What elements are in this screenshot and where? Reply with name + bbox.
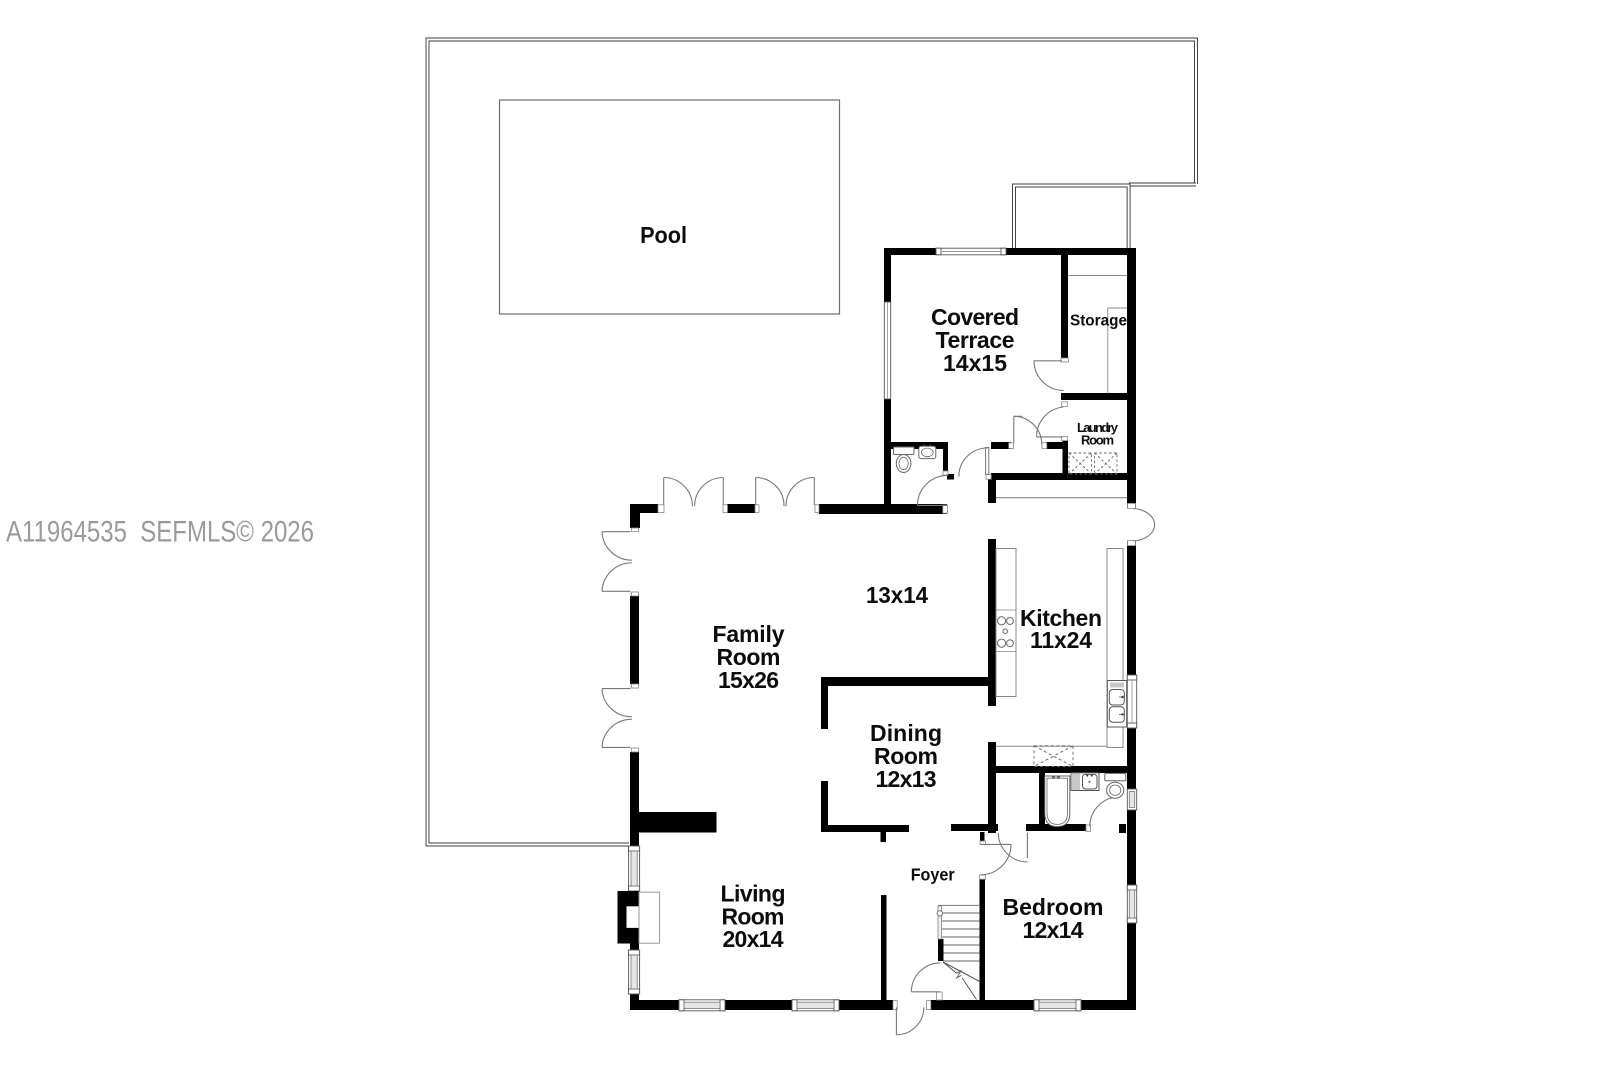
svg-text:20x14: 20x14 bbox=[723, 926, 784, 952]
svg-text:Foyer: Foyer bbox=[911, 865, 955, 885]
svg-text:14x15: 14x15 bbox=[943, 350, 1007, 376]
svg-text:11x24: 11x24 bbox=[1030, 627, 1092, 653]
svg-text:Room: Room bbox=[1081, 433, 1114, 448]
svg-text:Pool: Pool bbox=[640, 222, 687, 248]
svg-text:Storage: Storage bbox=[1070, 313, 1127, 330]
svg-text:12x13: 12x13 bbox=[876, 766, 937, 792]
svg-text:12x14: 12x14 bbox=[1023, 917, 1084, 943]
svg-text:15x26: 15x26 bbox=[718, 667, 779, 693]
svg-text:A11964535 SEFMLS© 2026: A11964535 SEFMLS© 2026 bbox=[6, 516, 314, 549]
svg-text:13x14: 13x14 bbox=[866, 582, 928, 608]
